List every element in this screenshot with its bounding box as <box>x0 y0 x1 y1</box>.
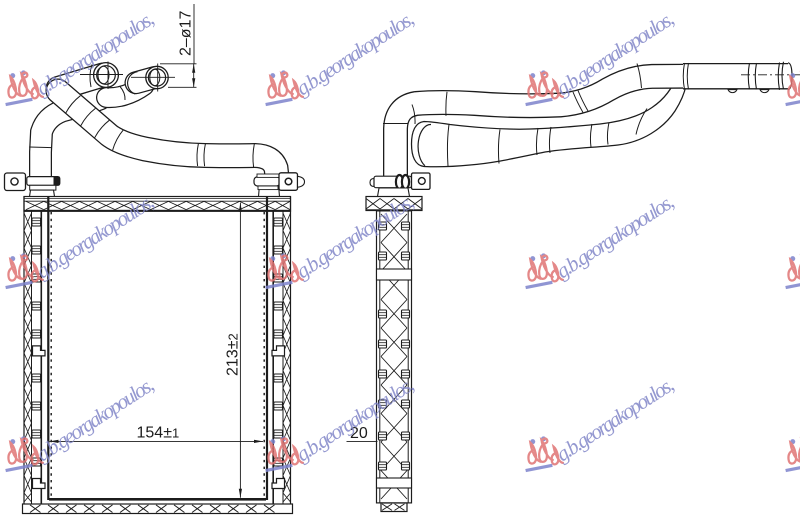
svg-text:2–ø17: 2–ø17 <box>178 11 195 56</box>
svg-text:154±1: 154±1 <box>137 425 180 442</box>
svg-text:213±2: 213±2 <box>225 333 242 376</box>
